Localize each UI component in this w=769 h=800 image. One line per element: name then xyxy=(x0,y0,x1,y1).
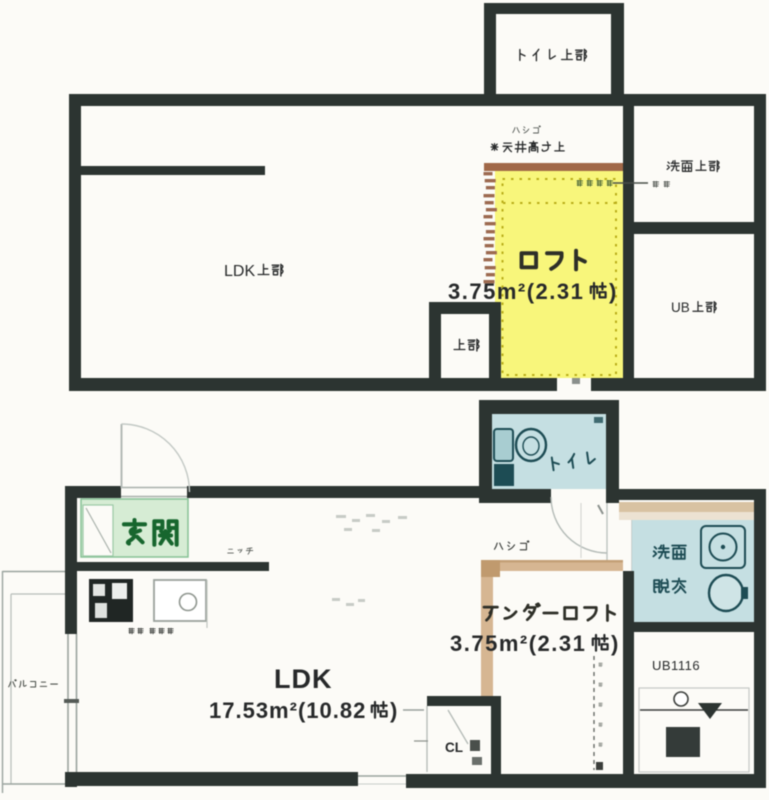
svg-text:LDK: LDK xyxy=(224,263,255,280)
svg-text:17.53m²(10.82: 17.53m²(10.82 xyxy=(209,698,366,723)
svg-text:): ) xyxy=(609,279,616,304)
svg-text:3.75m²(2.31: 3.75m²(2.31 xyxy=(450,631,586,656)
svg-text:LDK: LDK xyxy=(274,664,333,694)
svg-text:UB1116: UB1116 xyxy=(652,658,700,673)
svg-text:3.75m²(2.31: 3.75m²(2.31 xyxy=(448,279,584,304)
svg-text:): ) xyxy=(390,698,397,723)
svg-text:CL: CL xyxy=(445,740,463,755)
svg-text:UB: UB xyxy=(671,300,690,315)
svg-text:): ) xyxy=(611,631,618,656)
